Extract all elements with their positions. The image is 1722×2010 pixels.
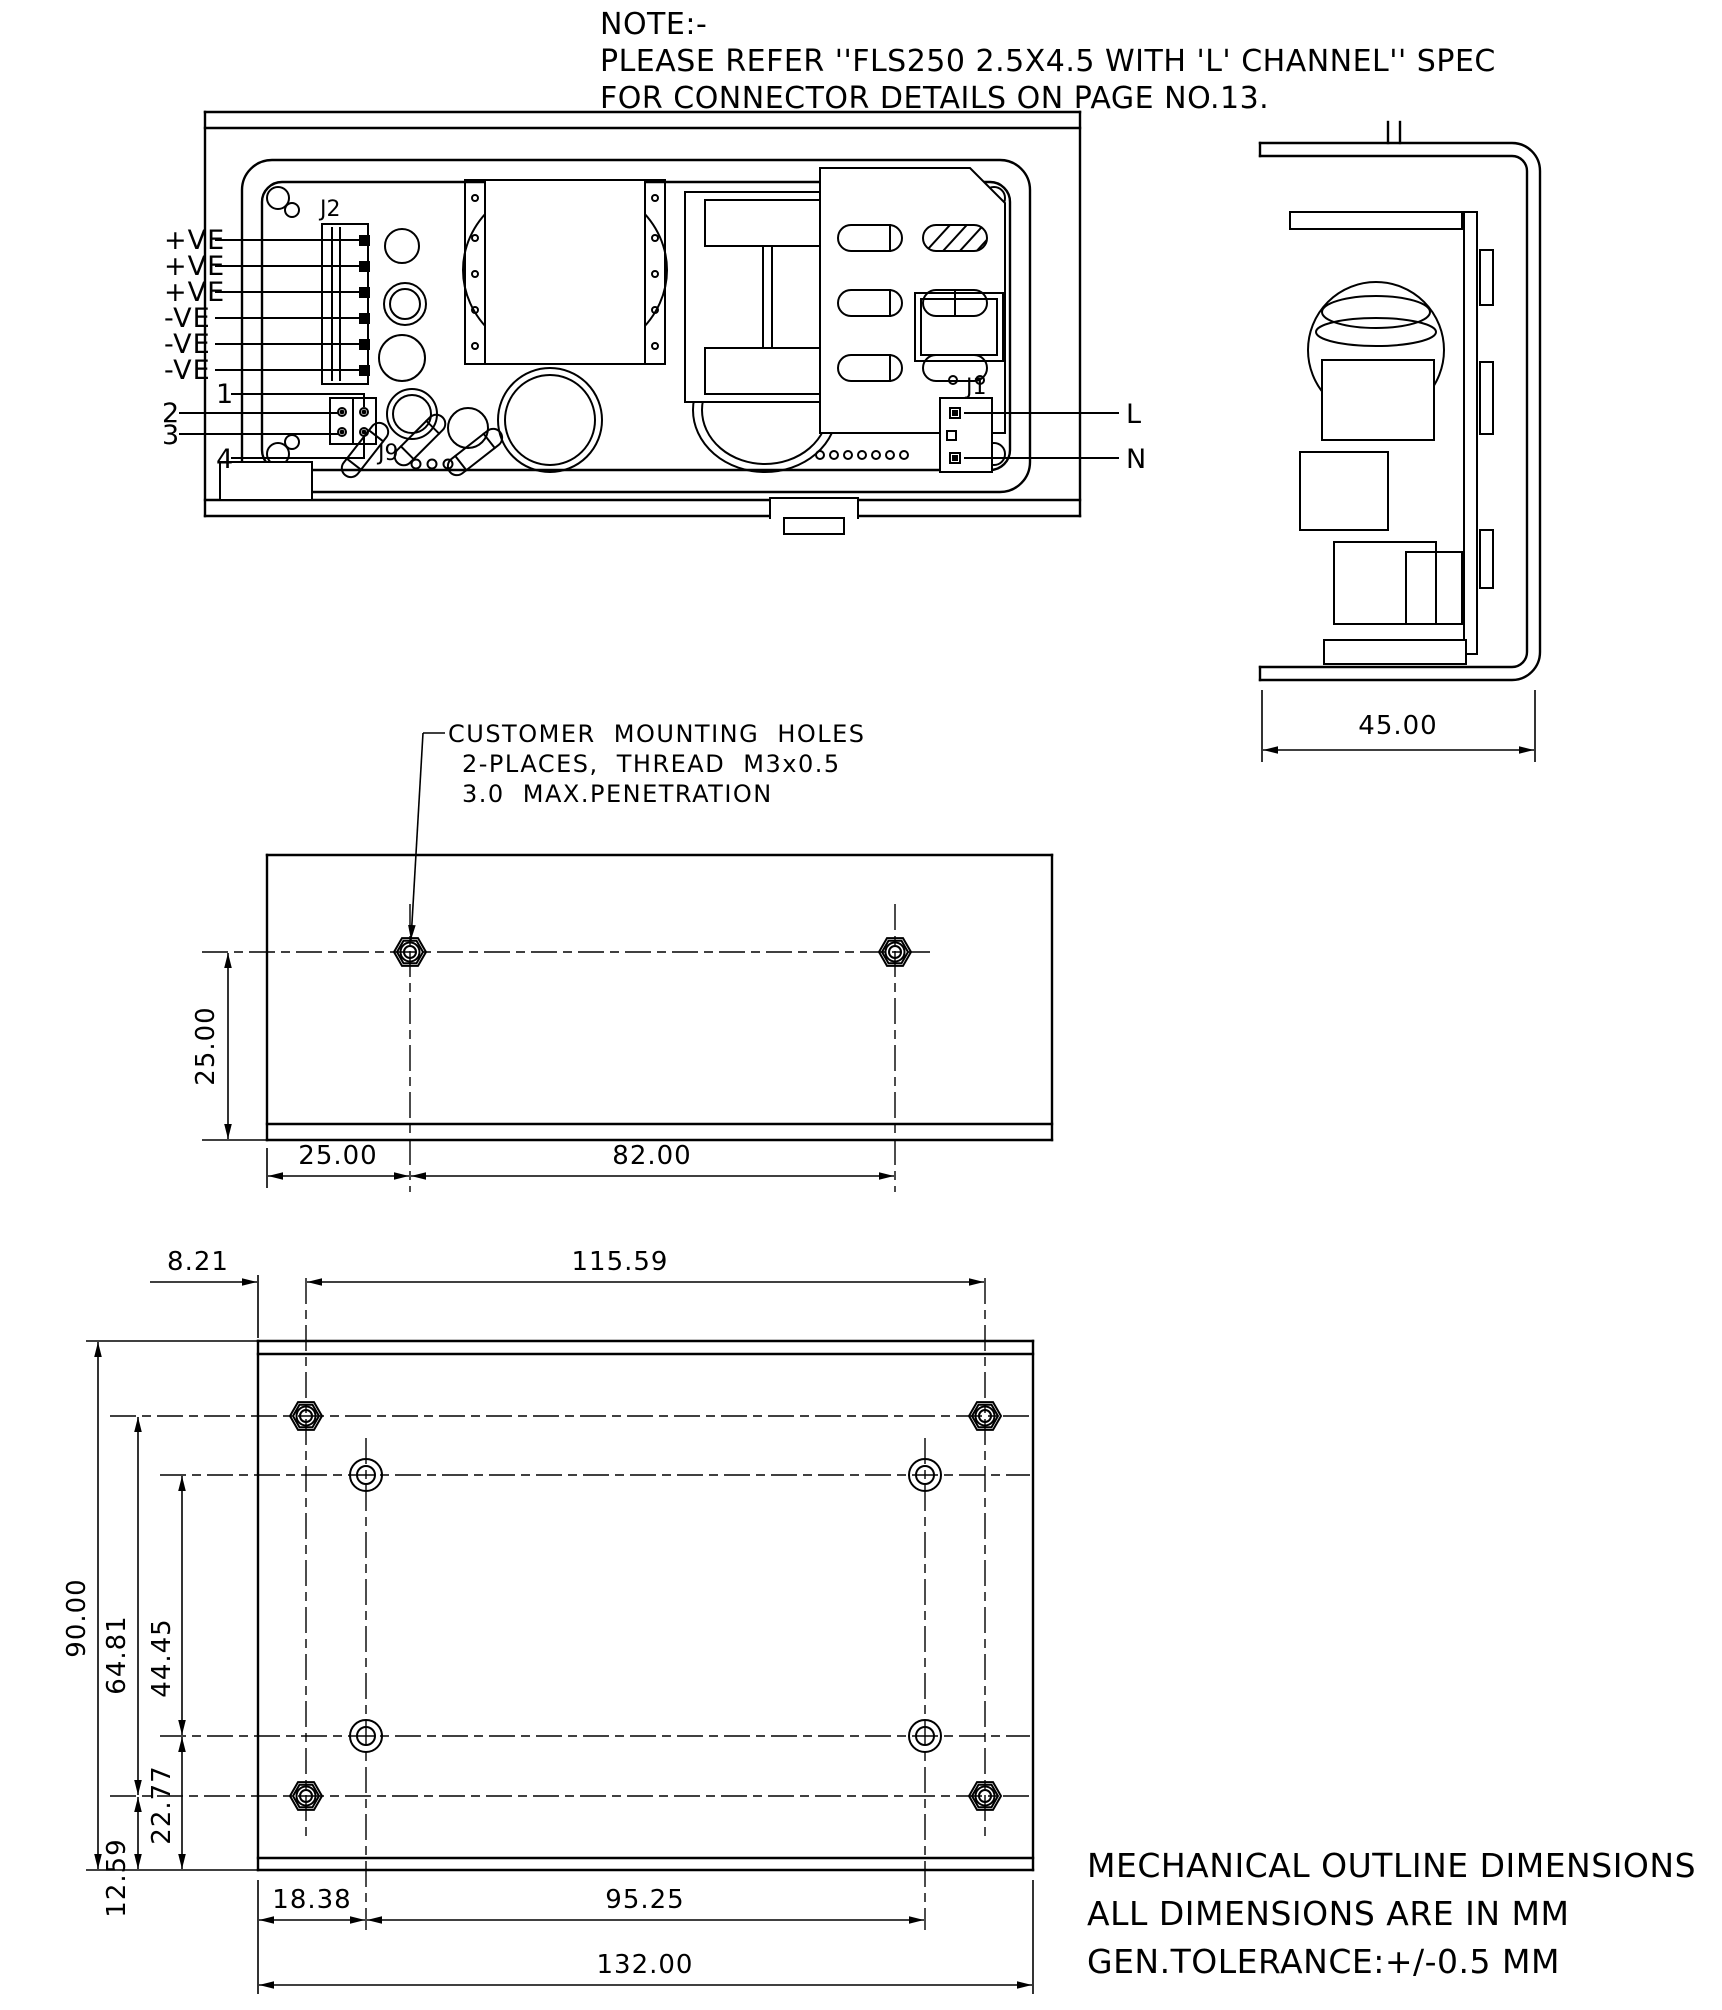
neutral-label: N — [1126, 444, 1147, 475]
footer-block: MECHANICAL OUTLINE DIMENSIONS ALL DIMENS… — [1087, 1842, 1696, 1986]
dim-left-edge-to-inner-hole: 18.38 — [272, 1885, 351, 1915]
pcb-edge — [1464, 212, 1477, 654]
dim-hole-to-bottom: 25.00 — [191, 1006, 221, 1085]
base-centerlines — [110, 1278, 1030, 1930]
footer-line-2: ALL DIMENSIONS ARE IN MM — [1087, 1890, 1696, 1938]
note-line-1: NOTE:- — [600, 6, 1496, 43]
dim-height: 90.00 — [62, 1578, 92, 1657]
filter-capacitors — [379, 229, 488, 469]
bottom-view-drawing: 8.21 115.59 90.00 64.81 44.45 22.77 12.5… — [30, 1230, 1140, 2010]
dim-width: 132.00 — [597, 1950, 694, 1980]
dim-inner-hole-spacing-y: 44.45 — [147, 1618, 177, 1697]
via-row — [816, 451, 908, 459]
output-label-6: -VE — [164, 355, 211, 386]
aux-connector — [330, 398, 376, 444]
dim-corner-hole-to-bottom: 12.59 — [102, 1838, 132, 1917]
dim-inner-hole-spacing-x: 95.25 — [605, 1885, 684, 1915]
footer-line-3: GEN.TOLERANCE:+/-0.5 MM — [1087, 1938, 1696, 1986]
dim-hole-spacing: 82.00 — [612, 1141, 691, 1171]
pin-label-3: 3 — [162, 420, 180, 451]
din-notch — [770, 498, 858, 518]
top-view-drawing: J2 +VE +VE +VE -VE -VE -VE 1 2 3 4 J9 J1… — [120, 98, 1220, 550]
pin-label-1: 1 — [216, 379, 234, 410]
pin-label-4: 4 — [216, 444, 234, 475]
dim-left-edge-to-corner-hole: 8.21 — [167, 1247, 229, 1277]
note-line-2: PLEASE REFER ''FLS250 2.5X4.5 WITH 'L' C… — [600, 43, 1496, 80]
drawing-sheet: NOTE:- PLEASE REFER ''FLS250 2.5X4.5 WIT… — [0, 0, 1722, 2010]
plate-outline — [267, 855, 1052, 1140]
base-dimension-lines — [86, 1275, 1033, 1994]
j2-connector — [322, 224, 369, 384]
dim-corner-hole-spacing-y: 64.81 — [102, 1615, 132, 1694]
dim-corner-hole-spacing-x: 115.59 — [572, 1247, 669, 1277]
aux-connector-label: J9 — [376, 441, 399, 466]
callout-line-3: 3.0 MAX.PENETRATION — [462, 780, 773, 808]
mounting-view-drawing: CUSTOMER MOUNTING HOLES 2-PLACES, THREAD… — [140, 700, 1100, 1212]
callout-line-1: CUSTOMER MOUNTING HOLES — [448, 720, 866, 748]
dim-left-to-hole: 25.00 — [298, 1141, 377, 1171]
main-transformer — [463, 180, 667, 364]
j2-label: J2 — [318, 197, 341, 222]
depth-dim-text: 45.00 — [1358, 711, 1437, 741]
callout-line-2: 2-PLACES, THREAD M3x0.5 — [462, 750, 841, 778]
base-outline — [258, 1341, 1033, 1870]
side-view-drawing: 45.00 — [1230, 100, 1710, 800]
j1-label: J1 — [964, 375, 987, 400]
footer-line-1: MECHANICAL OUTLINE DIMENSIONS — [1087, 1842, 1696, 1890]
line-label: L — [1126, 399, 1142, 430]
dim-inner-hole-to-bottom: 22.77 — [147, 1765, 177, 1844]
callout-leader — [411, 733, 445, 940]
side-components — [1290, 212, 1493, 664]
bulk-capacitor — [498, 368, 602, 472]
